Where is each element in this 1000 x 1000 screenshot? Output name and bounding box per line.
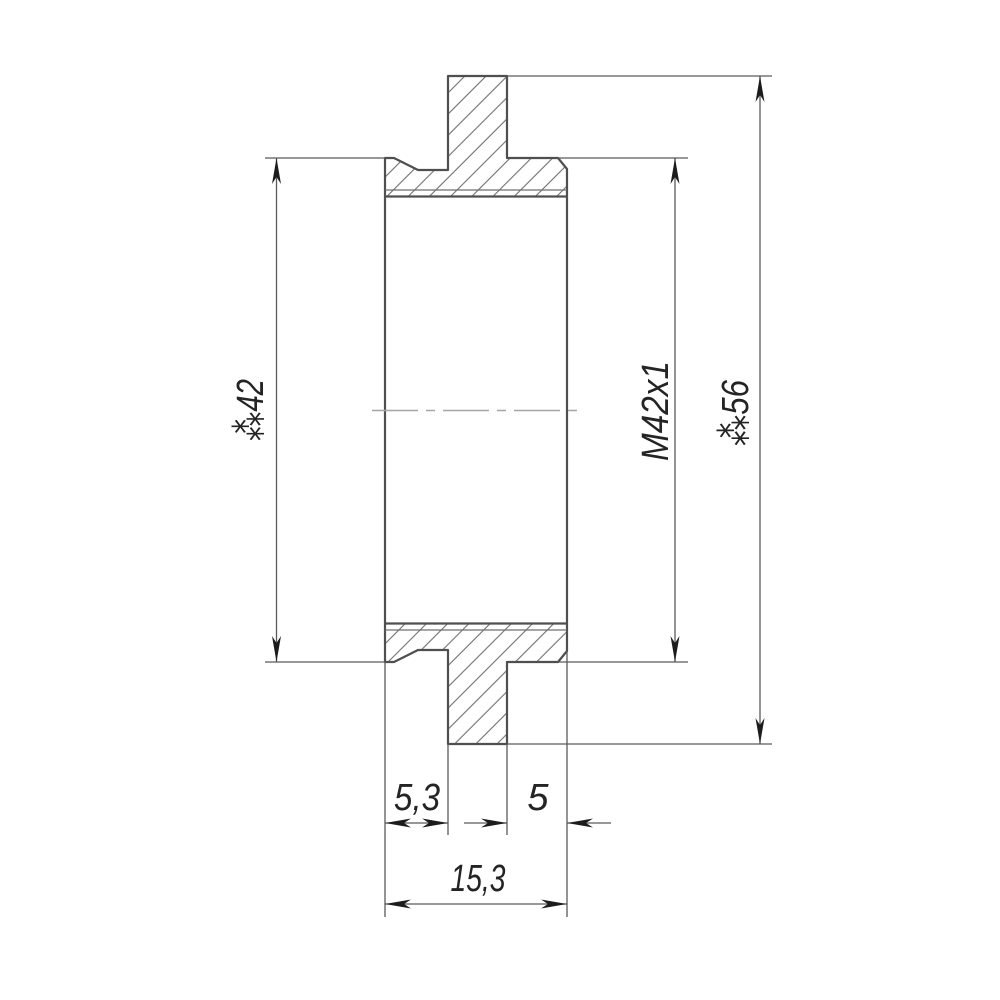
technical-drawing: ⁂42 M42x1 ⁂56 5,3	[0, 0, 1000, 1000]
dimension-label-5-3: 5,3	[394, 777, 440, 819]
dimension-label-dia56: ⁂56	[715, 379, 757, 446]
dimension-label-15-3: 15,3	[451, 858, 506, 900]
drawing-canvas: ⁂42 M42x1 ⁂56 5,3	[0, 0, 1000, 1000]
lower-section-cut	[385, 624, 567, 745]
part-cross-section	[372, 76, 581, 744]
dimension-15-3: 15,3	[385, 858, 567, 909]
dimension-5: 5	[464, 777, 611, 828]
dimension-label-dia42: ⁂42	[230, 379, 272, 441]
dimension-dia42: ⁂42	[230, 158, 385, 662]
dimension-label-5: 5	[527, 777, 549, 819]
dimension-thread-m42x1: M42x1	[558, 158, 688, 662]
dimension-5-3: 5,3	[385, 777, 448, 828]
upper-section-cut	[385, 76, 567, 197]
dimension-label-thread: M42x1	[635, 361, 677, 461]
